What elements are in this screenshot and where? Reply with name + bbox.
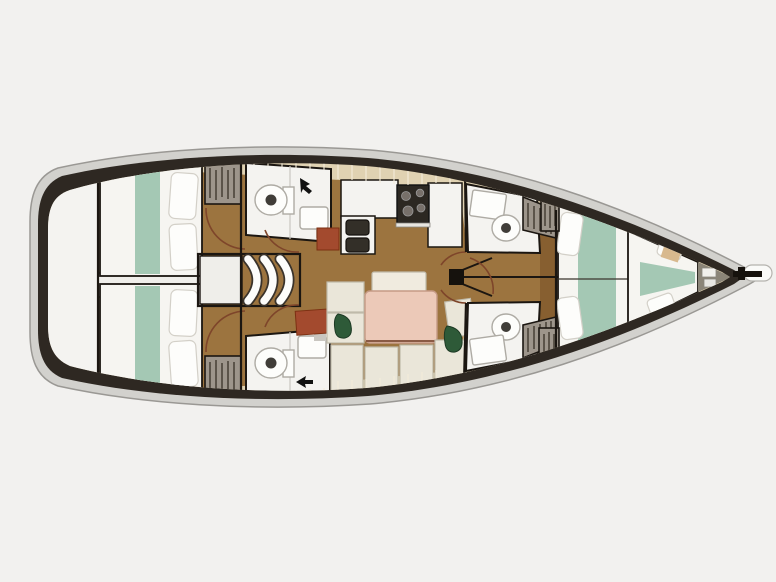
galley-counter-right (428, 183, 462, 247)
bowsprit (733, 265, 772, 281)
toilet-drain (266, 195, 277, 206)
sink-icon (346, 220, 369, 235)
pillow-icon (168, 172, 198, 220)
toilet-drain (501, 223, 511, 233)
yacht-floor-plan (0, 0, 776, 582)
pillow-icon (168, 340, 198, 388)
pillow-icon (169, 223, 198, 270)
wood-shelf-fwd-port-flank (540, 232, 557, 328)
sink-icon (469, 335, 506, 365)
galley-counter-left (341, 180, 398, 218)
mast-icon (449, 269, 464, 285)
toilet-drain (266, 358, 277, 369)
bow-fitting (702, 268, 716, 277)
salon-table (365, 291, 437, 343)
aft-port-teal-runner (135, 167, 160, 274)
companionway-landing (200, 256, 242, 304)
salon-cushion (327, 282, 364, 312)
stove-icon (397, 185, 429, 223)
sink-icon (300, 207, 328, 229)
aft-stbd-teal-runner (135, 286, 160, 393)
sink-icon (346, 238, 369, 252)
bowsprit-rod-icon (733, 271, 762, 277)
salon-bench-top (372, 272, 426, 293)
pillow-icon (169, 289, 198, 336)
bowsprit-base (738, 267, 745, 280)
toilet-drain (501, 322, 511, 332)
floor-plan-page (0, 0, 776, 582)
cabinet-red (317, 228, 339, 250)
stove-rail (396, 223, 430, 227)
salon-cushion (331, 345, 363, 391)
